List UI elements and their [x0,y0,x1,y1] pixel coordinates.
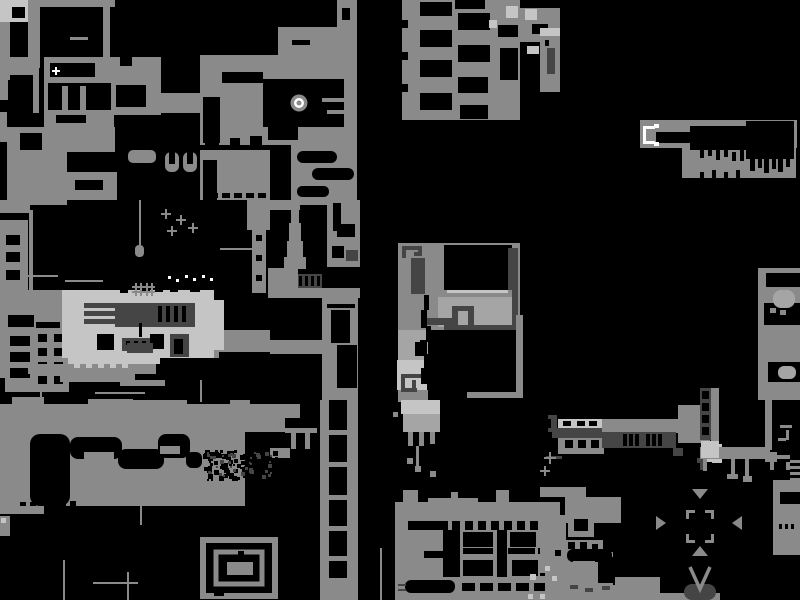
eye-landmark [291,95,308,112]
game-screen [0,0,800,600]
game-map[interactable] [0,0,800,600]
